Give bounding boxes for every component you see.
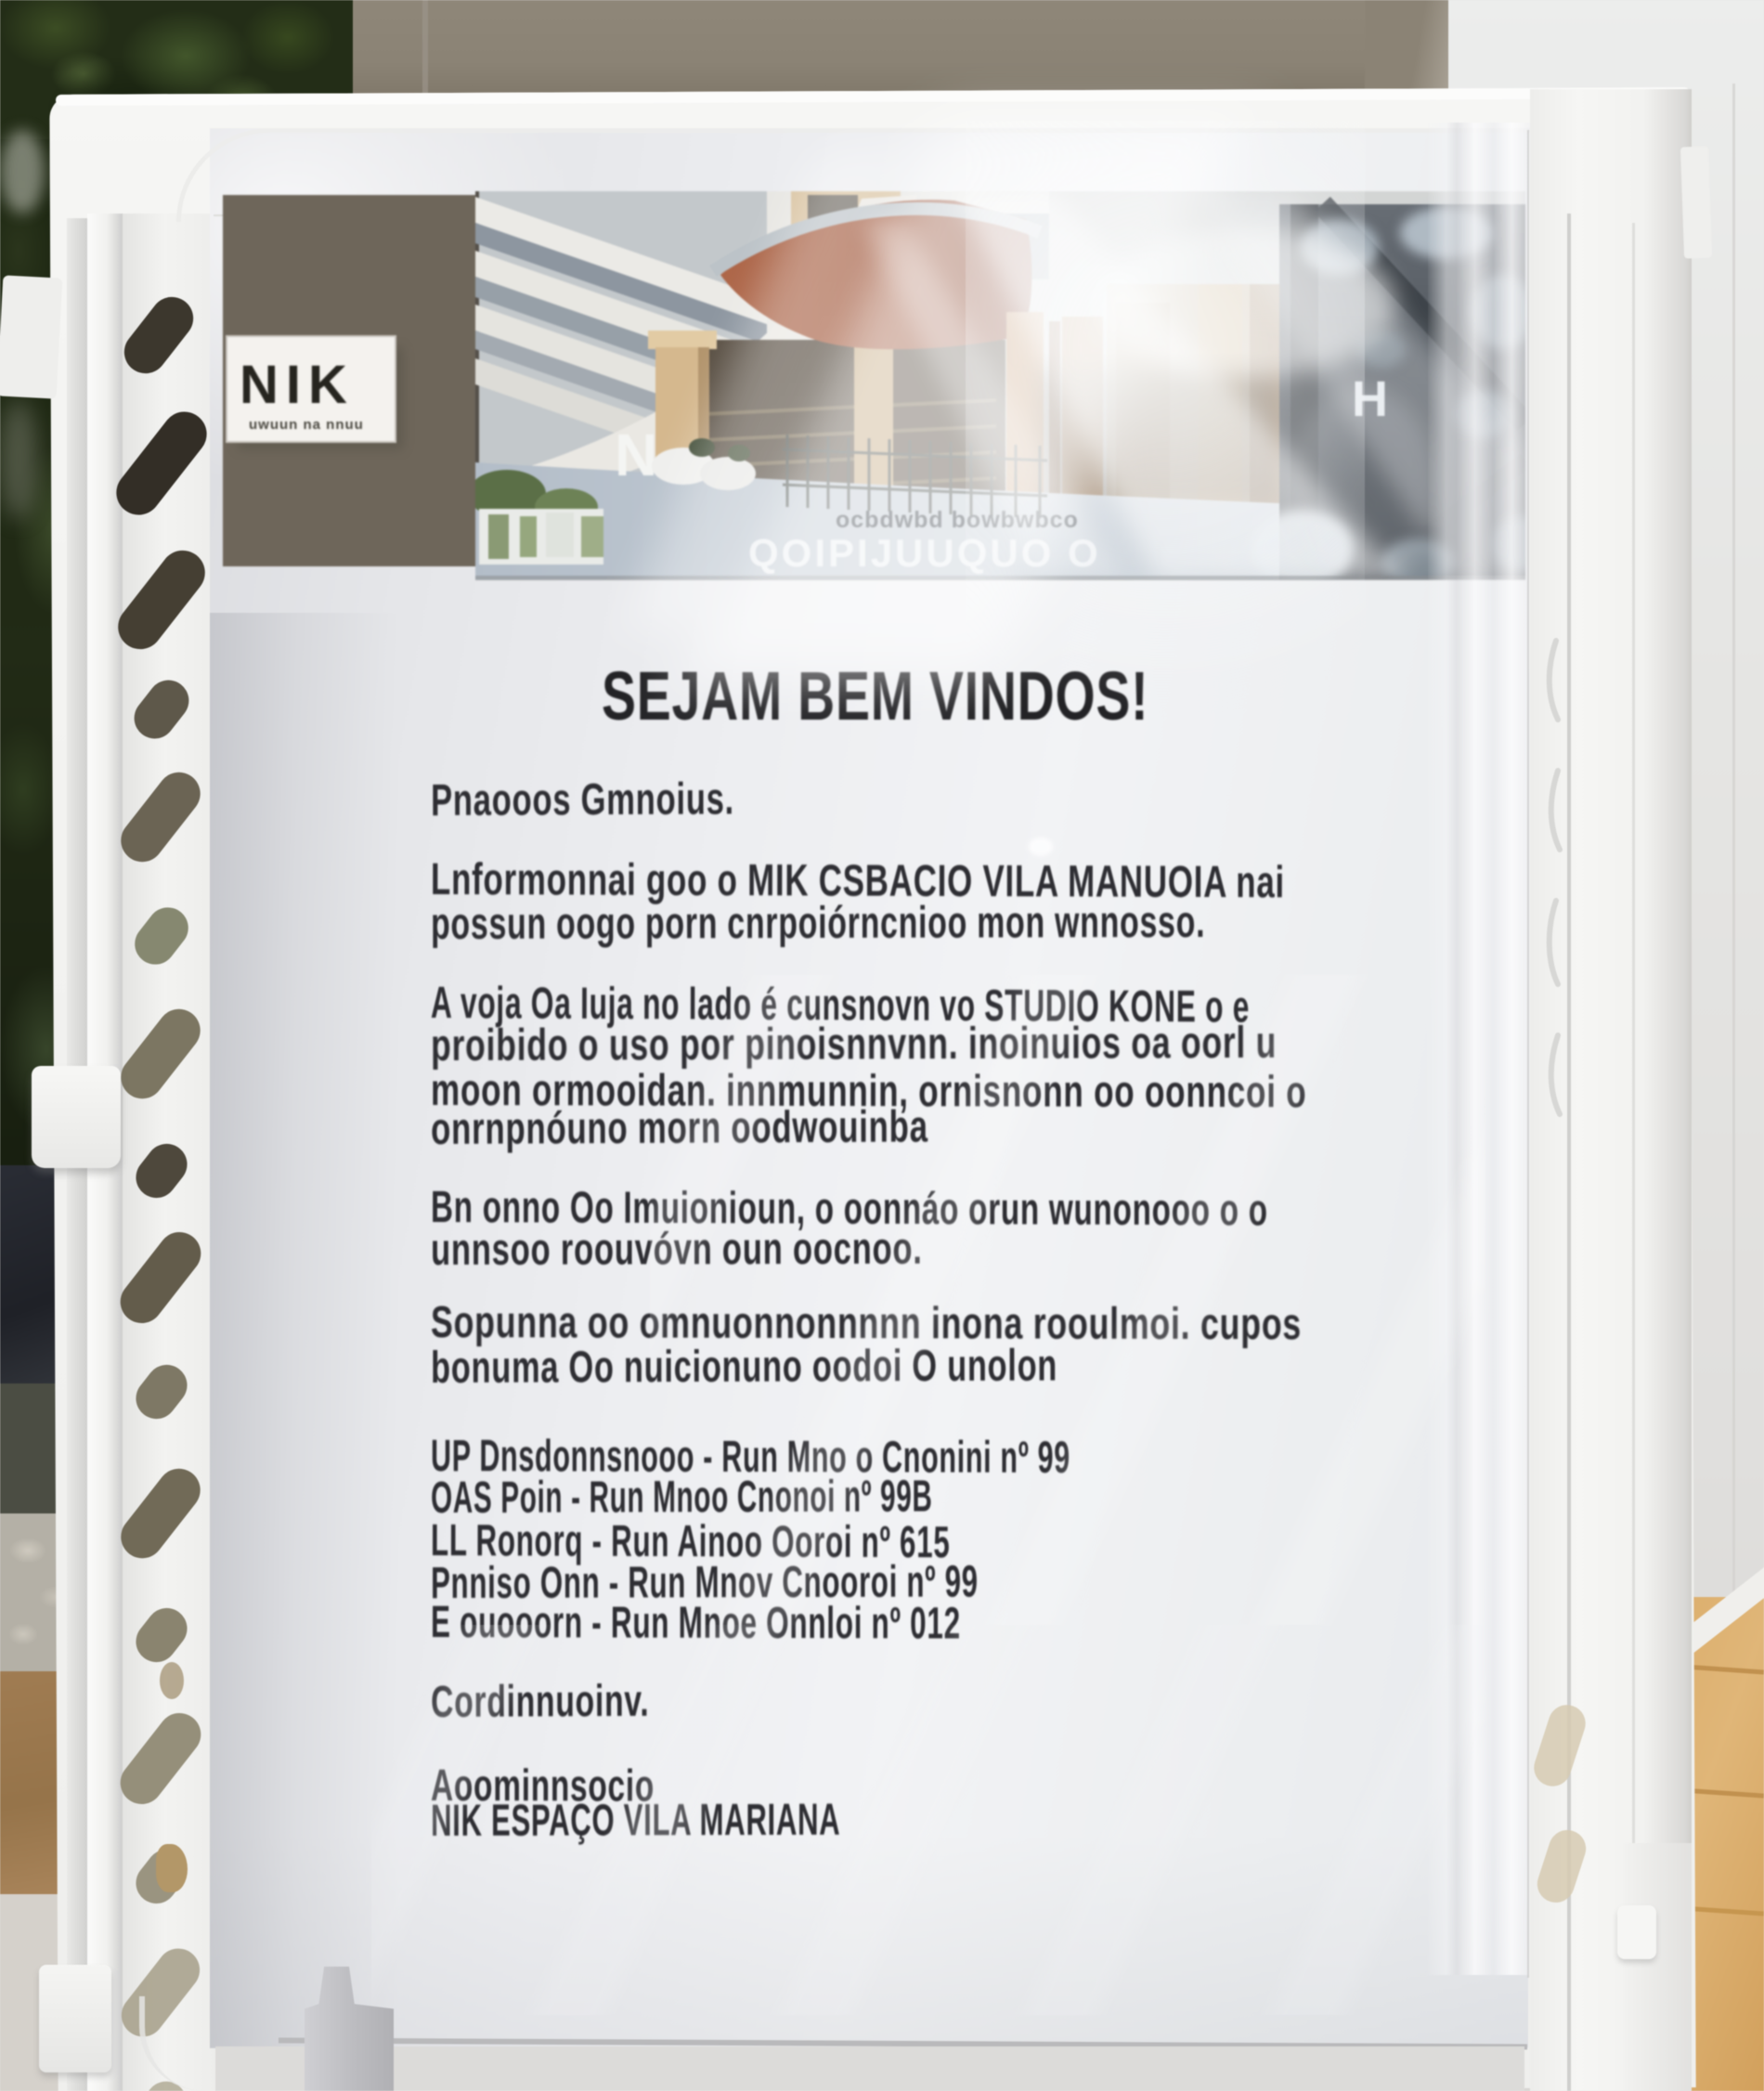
svg-text:uwuun na nnuu: uwuun na nnuu xyxy=(249,417,364,433)
svg-text:NIK: NIK xyxy=(240,355,355,415)
svg-text:N: N xyxy=(615,422,657,488)
